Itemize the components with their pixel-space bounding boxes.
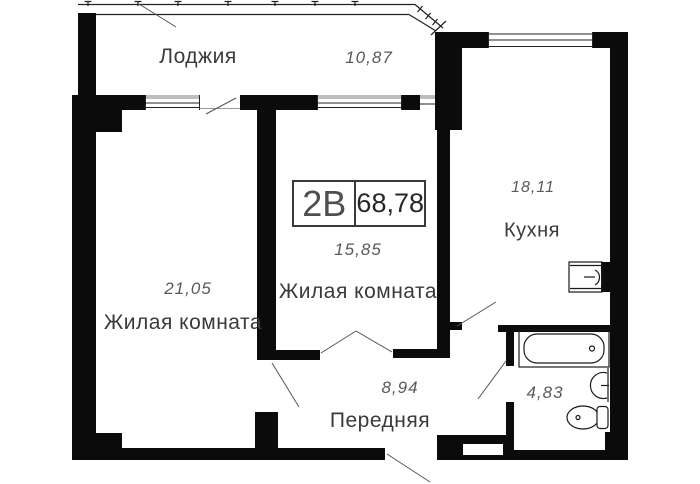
wall <box>78 13 96 95</box>
wall <box>255 412 278 450</box>
room-label-hallway: Передняя <box>330 409 430 433</box>
room-label-loggia: Лоджия <box>159 45 236 69</box>
threshold-notch <box>463 444 503 455</box>
room-label-living-middle: Жилая комната <box>279 280 437 304</box>
wall <box>266 350 320 360</box>
wall <box>72 95 96 460</box>
window <box>145 95 200 110</box>
window <box>488 32 593 48</box>
unit-type-badge: 2В 68,78 <box>292 180 426 227</box>
door-swing-line <box>321 331 356 353</box>
room-area-living-left: 21,05 <box>164 279 212 299</box>
room-label-kitchen: Кухня <box>504 220 560 243</box>
sink-icon <box>590 368 609 402</box>
room-area-kitchen: 18,11 <box>511 179 555 197</box>
wall <box>610 32 628 460</box>
wall <box>402 95 420 110</box>
unit-type-value: 2В <box>294 182 356 225</box>
wall <box>506 330 514 366</box>
room-area-bathroom: 4,83 <box>526 383 563 403</box>
wall <box>506 402 514 450</box>
room-label-living-left: Жилая комната <box>104 311 262 335</box>
bathroom-door-swing <box>478 361 506 399</box>
window <box>317 95 402 110</box>
windows <box>145 32 593 110</box>
wall <box>445 322 462 330</box>
balcony-railing <box>78 1 446 35</box>
railing-leader-line <box>139 4 176 27</box>
wall <box>240 95 317 110</box>
wall <box>435 32 462 130</box>
kitchen-sink-icon <box>569 262 602 292</box>
wall <box>96 110 122 132</box>
wall <box>514 450 608 460</box>
bathtub-icon <box>519 330 609 367</box>
door-swing-line <box>356 331 392 352</box>
wall <box>593 32 628 48</box>
room-area-living-middle: 15,85 <box>334 240 382 260</box>
wall <box>437 130 450 352</box>
kitchen-door-swing <box>457 302 496 326</box>
window <box>420 95 435 104</box>
room-area-hallway: 8,94 <box>381 378 418 398</box>
balcony-door-swing <box>206 98 236 114</box>
floor-plan: Лоджия 10,87 21,05 Жилая комната 15,85 Ж… <box>0 0 700 484</box>
entrance-door-swing <box>387 454 430 482</box>
wall <box>72 95 145 110</box>
door-swing-line <box>272 363 299 407</box>
wall <box>393 349 450 358</box>
toilet-icon <box>567 406 608 429</box>
unit-total-area: 68,78 <box>356 182 424 225</box>
room-area-loggia: 10,87 <box>345 48 393 68</box>
wall <box>72 448 385 460</box>
